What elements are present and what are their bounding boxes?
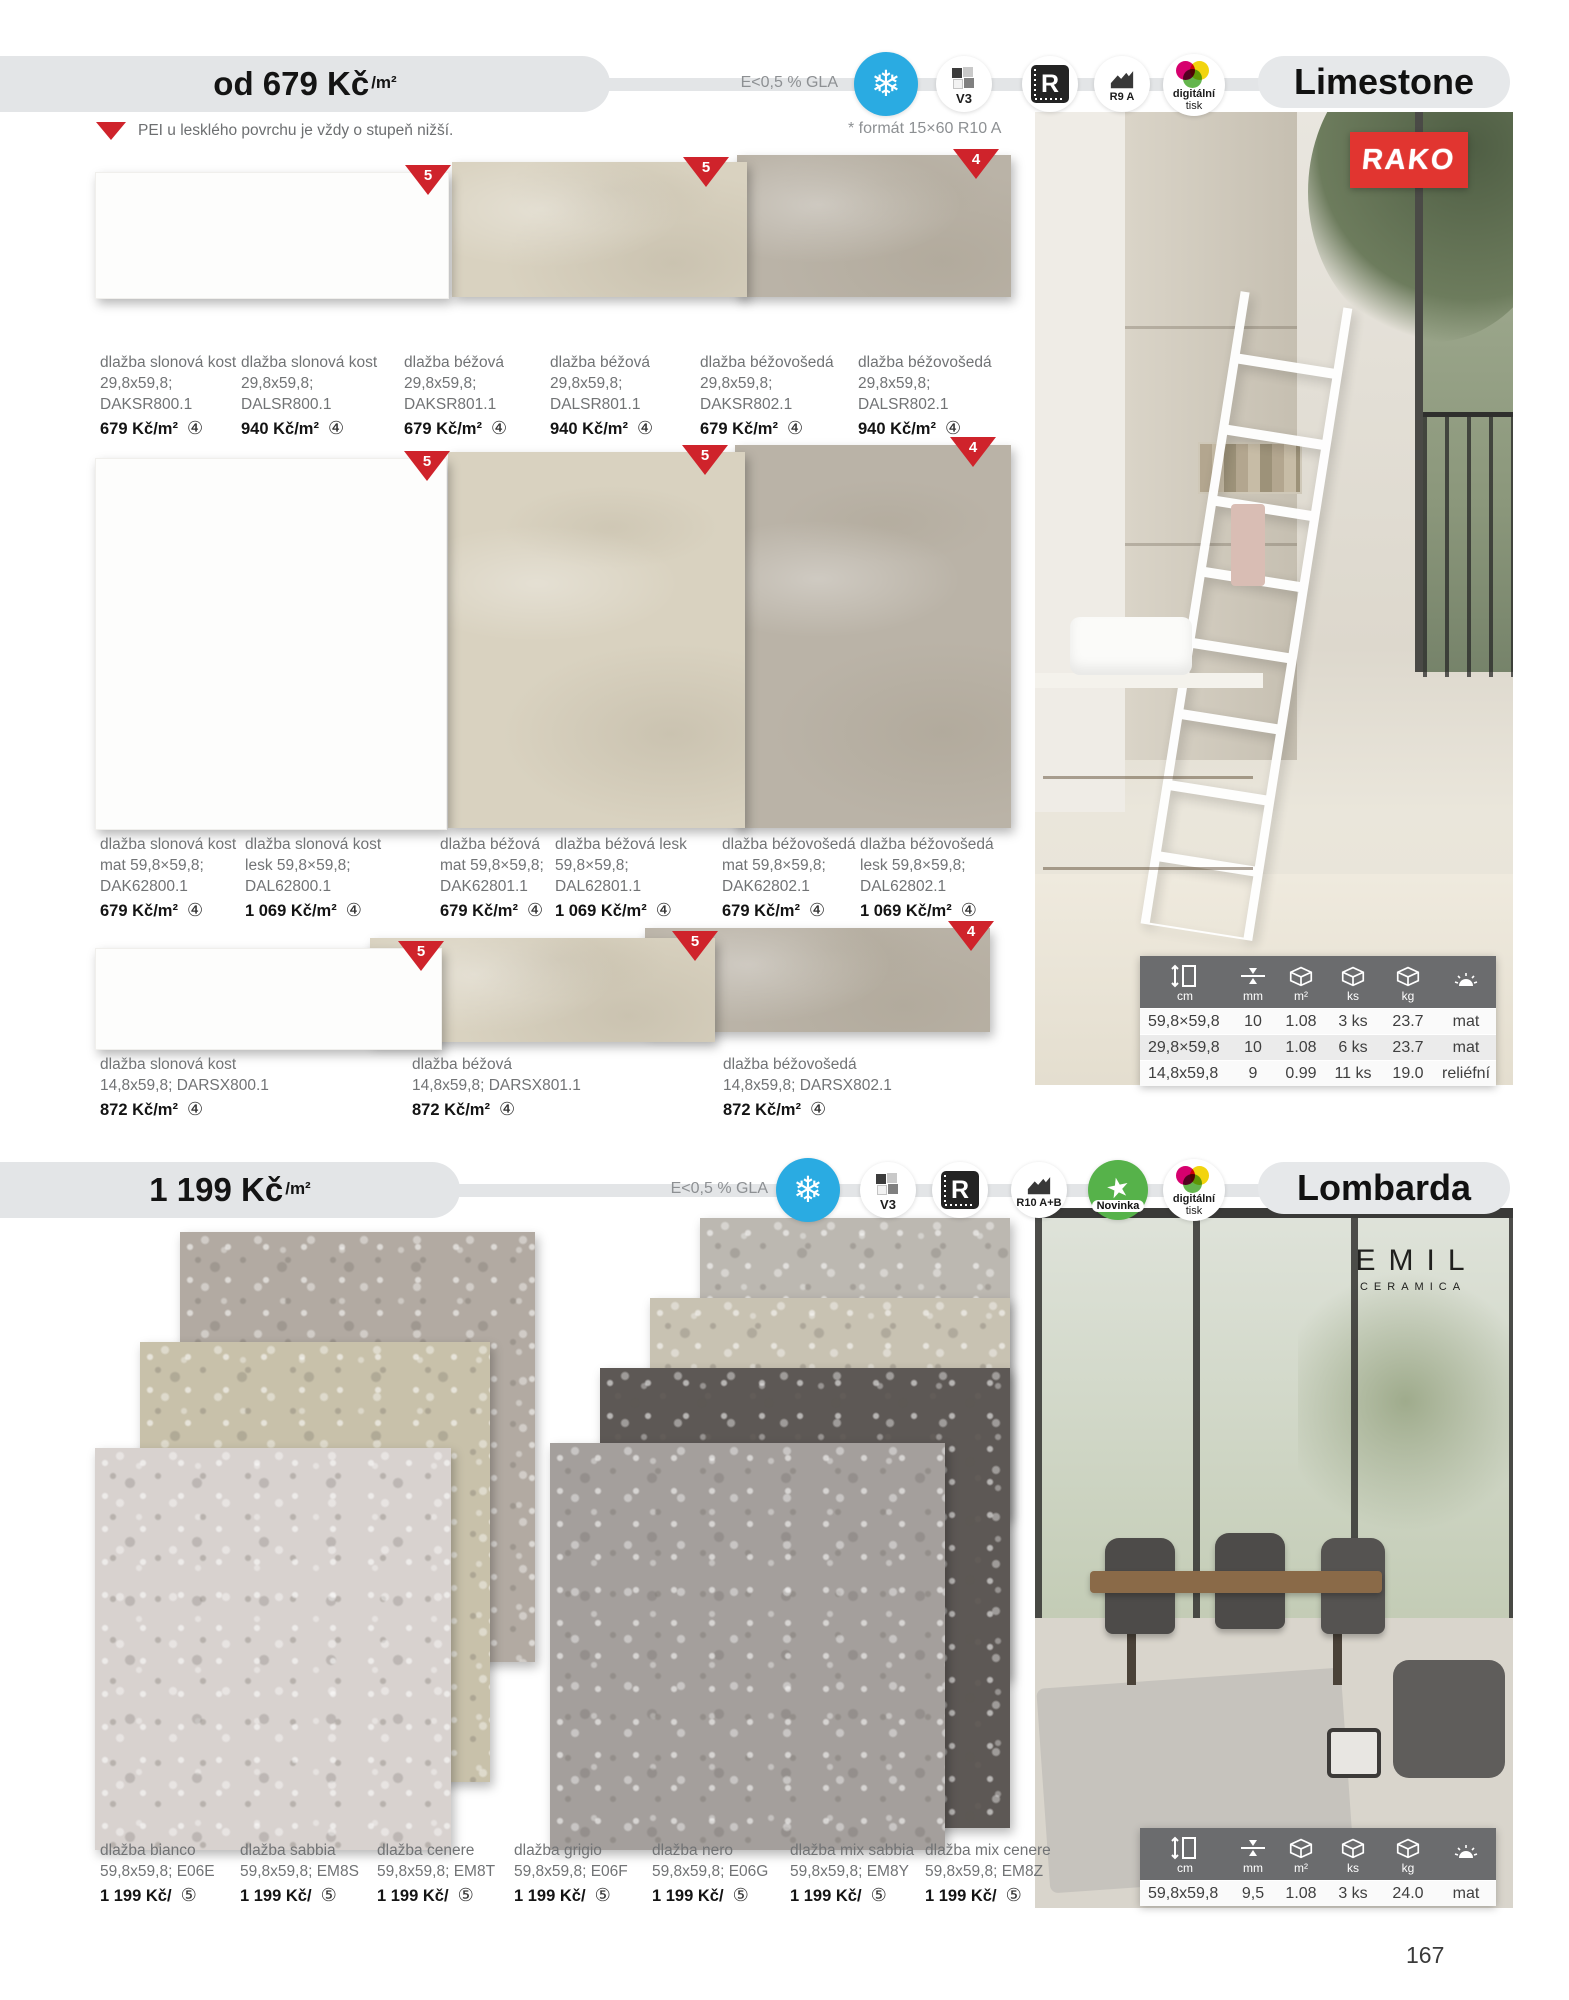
product-code: DAL62801.1	[555, 876, 715, 897]
product-name: dlažba béžovošedá	[722, 834, 882, 855]
footnote-number: ④	[810, 1099, 826, 1119]
limestone-row1-labels: dlažba slonová kost 29,8x59,8; DAKSR800.…	[0, 352, 1100, 464]
spec-row: 59,8×59,8101.083 ks23.7mat	[1140, 1008, 1496, 1034]
col-size: cm	[1140, 956, 1230, 1008]
novinka-badge: ★ Novinka	[1088, 1160, 1148, 1220]
shade-variation-label: V3	[880, 1197, 896, 1212]
swatch-slonova-kost-59x59	[95, 458, 447, 830]
lombarda-photo	[1035, 1208, 1513, 1908]
product-price: 679 Kč/m²④	[404, 418, 564, 439]
product-code: DALSR800.1	[241, 394, 401, 415]
star-icon: ★	[1103, 1172, 1132, 1203]
limestone-price: od 679 Kč	[213, 65, 369, 103]
product-size: 29,8x59,8;	[700, 373, 860, 394]
lombarda-price-unit: /m²	[285, 1179, 311, 1199]
thickness-icon	[1238, 963, 1268, 989]
product-label: dlažba béžovošedá mat 59,8×59,8; DAK6280…	[722, 834, 882, 921]
footnote-number: ⑤	[1006, 1885, 1022, 1905]
swatch-bezovoseda-59x59	[735, 445, 1011, 828]
product-code: DAKSR800.1	[100, 394, 260, 415]
slip-rating-icon: R10 A+B	[1011, 1162, 1067, 1218]
checker-icon	[952, 67, 976, 89]
product-price: 940 Kč/m²④	[241, 418, 401, 439]
product-name: dlažba béžová	[550, 352, 710, 373]
swatch-slonova-kost-14x59	[95, 948, 442, 1050]
product-name: dlažba béžovošedá	[723, 1054, 883, 1075]
digital-print-icon: digitální tisk	[1163, 54, 1225, 116]
swatch-bianco	[95, 1448, 451, 1850]
spec-table-header: cm mm m² ks kg	[1140, 1828, 1496, 1880]
box-icon	[1287, 963, 1315, 989]
product-label: dlažba slonová kost mat 59,8×59,8; DAK62…	[100, 834, 260, 921]
product-label: dlažba slonová kost 29,8x59,8; DAKSR800.…	[100, 352, 260, 439]
ramp-icon	[1025, 1172, 1053, 1196]
footnote-number: ⑤	[321, 1885, 337, 1905]
product-size: 29,8x59,8;	[100, 373, 260, 394]
product-name: dlažba slonová kost	[100, 834, 260, 855]
spec-table-rows: 59,8×59,8101.083 ks23.7mat 29,8×59,8101.…	[1140, 1008, 1496, 1086]
col-surface	[1436, 956, 1496, 1008]
slip-rating-label: R10 A+B	[1016, 1197, 1061, 1209]
surface-icon	[1451, 1841, 1481, 1867]
shade-variation-icon: V3	[936, 56, 992, 112]
product-name: dlažba slonová kost	[245, 834, 405, 855]
product-label: dlažba béžovošedá 14,8x59,8; DARSX802.1 …	[723, 1054, 883, 1120]
product-label: dlažba slonová kost lesk 59,8×59,8; DAL6…	[245, 834, 405, 921]
surface-icon	[1451, 969, 1481, 995]
lombarda-price: 1 199 Kč	[149, 1171, 283, 1209]
product-size: 59,8×59,8;	[555, 855, 715, 876]
product-price: 679 Kč/m²④	[700, 418, 860, 439]
photo-dining-table	[1090, 1571, 1382, 1593]
digital-print-icon: digitální tisk	[1163, 1159, 1225, 1221]
color-circles-icon	[1174, 1166, 1214, 1192]
novinka-label: Novinka	[1092, 1200, 1145, 1212]
snowflake-icon: ❄	[793, 1172, 823, 1208]
product-price: 1 069 Kč/m²④	[860, 900, 1020, 921]
product-size-code: 59,8x59,8; E06F	[514, 1861, 674, 1882]
photo-armchair	[1393, 1660, 1505, 1778]
r-square-icon: R	[941, 1171, 979, 1209]
swatch-bezovoseda-29x59	[737, 155, 1011, 297]
box-icon	[1287, 1835, 1315, 1861]
product-name: dlažba béžová	[404, 352, 564, 373]
red-triangle-icon	[96, 122, 126, 140]
swatch-bezova-59x59	[448, 452, 745, 828]
limestone-title: Limestone	[1258, 56, 1510, 108]
product-code: DAKSR801.1	[404, 394, 564, 415]
product-label: dlažba cenere 59,8x59,8; EM8T 1 199 Kč/⑤	[377, 1840, 537, 1906]
product-price: 679 Kč/m²④	[722, 900, 882, 921]
product-size-code: 14,8x59,8; DARSX802.1	[723, 1075, 883, 1096]
product-code: DALSR802.1	[858, 394, 1018, 415]
footnote-number: ⑤	[181, 1885, 197, 1905]
product-size-code: 59,8x59,8; EM8S	[240, 1861, 400, 1882]
product-price: 1 199 Kč/⑤	[925, 1885, 1085, 1906]
lombarda-title: Lombarda	[1258, 1162, 1510, 1214]
rako-logo: RAKO	[1350, 132, 1468, 188]
spec-row: 29,8×59,8101.086 ks23.7mat	[1140, 1034, 1496, 1060]
col-sqm: m²	[1276, 1828, 1326, 1880]
spec-table-header: cm mm m² ks kg	[1140, 956, 1496, 1008]
product-code: DAK62800.1	[100, 876, 260, 897]
photo-towel	[1231, 504, 1265, 586]
frost-resistant-icon: ❄	[854, 52, 918, 116]
limestone-price-unit: /m²	[371, 73, 397, 93]
product-name: dlažba cenere	[377, 1840, 537, 1861]
product-label: dlažba slonová kost 14,8x59,8; DARSX800.…	[100, 1054, 260, 1120]
footnote-number: ④	[187, 418, 203, 438]
product-price: 1 199 Kč/⑤	[652, 1885, 812, 1906]
checker-icon	[876, 1173, 900, 1195]
snowflake-icon: ❄	[871, 66, 901, 102]
col-pieces: ks	[1326, 956, 1380, 1008]
product-price: 1 069 Kč/m²④	[245, 900, 405, 921]
product-name: dlažba béžovošedá	[858, 352, 1018, 373]
box-icon	[1339, 1835, 1367, 1861]
product-price: 679 Kč/m²④	[100, 900, 260, 921]
product-label: dlažba béžová 29,8x59,8; DALSR801.1 940 …	[550, 352, 710, 439]
product-label: dlažba béžovošedá 29,8x59,8; DALSR802.1 …	[858, 352, 1018, 439]
footnote-number: ⑤	[595, 1885, 611, 1905]
footnote-number: ④	[527, 900, 543, 920]
photo-basin	[1070, 617, 1192, 675]
product-label: dlažba slonová kost 29,8x59,8; DALSR800.…	[241, 352, 401, 439]
footnote-number: ⑤	[458, 1885, 474, 1905]
product-size: 29,8x59,8;	[858, 373, 1018, 394]
product-size-code: 59,8x59,8; EM8T	[377, 1861, 537, 1882]
pei-note: PEI u lesklého povrchu je vždy o stupeň …	[96, 122, 453, 140]
product-label: dlažba béžová 29,8x59,8; DAKSR801.1 679 …	[404, 352, 564, 439]
product-name: dlažba béžovošedá	[700, 352, 860, 373]
r-square-icon: R	[1031, 65, 1069, 103]
product-price: 1 069 Kč/m²④	[555, 900, 715, 921]
product-label: dlažba grigio 59,8x59,8; E06F 1 199 Kč/⑤	[514, 1840, 674, 1906]
product-code: DAKSR802.1	[700, 394, 860, 415]
product-label: dlažba sabbia 59,8x59,8; EM8S 1 199 Kč/⑤	[240, 1840, 400, 1906]
swatch-grigio	[550, 1443, 945, 1850]
lombarda-spec-table: cm mm m² ks kg	[1140, 1828, 1496, 1906]
col-weight: kg	[1380, 1828, 1436, 1880]
swatch-slonova-kost-29x59	[95, 172, 449, 299]
product-code: DALSR801.1	[550, 394, 710, 415]
col-surface	[1436, 1828, 1496, 1880]
footnote-number: ④	[187, 1099, 203, 1119]
col-thickness: mm	[1230, 1828, 1276, 1880]
slip-rating-label: R9 A	[1110, 91, 1135, 103]
product-name: dlažba bianco	[100, 1840, 260, 1861]
footnote-number: ④	[945, 418, 961, 438]
limestone-row2-labels: dlažba slonová kost mat 59,8×59,8; DAK62…	[0, 834, 1100, 946]
product-label: dlažba béžovošedá 29,8x59,8; DAKSR802.1 …	[700, 352, 860, 439]
footnote-number: ④	[787, 418, 803, 438]
col-weight: kg	[1380, 956, 1436, 1008]
product-name: dlažba mix cenere	[925, 1840, 1085, 1861]
limestone-photo	[1035, 112, 1513, 1085]
limestone-spec-table: cm mm m² ks kg	[1140, 956, 1496, 1086]
thickness-icon	[1238, 1835, 1268, 1861]
product-size-code: 14,8x59,8; DARSX800.1	[100, 1075, 260, 1096]
product-name: dlažba béžová	[412, 1054, 572, 1075]
product-name: dlažba slonová kost	[241, 352, 401, 373]
product-price: 872 Kč/m²④	[100, 1099, 260, 1120]
photo-countertop	[1035, 673, 1263, 688]
lombarda-labels: dlažba bianco 59,8x59,8; E06E 1 199 Kč/⑤…	[0, 1840, 1100, 1952]
product-size: lesk 59,8×59,8;	[245, 855, 405, 876]
product-label: dlažba béžová lesk 59,8×59,8; DAL62801.1…	[555, 834, 715, 921]
col-size: cm	[1140, 1828, 1230, 1880]
format-note: * formát 15×60 R10 A	[848, 120, 1001, 138]
col-pieces: ks	[1326, 1828, 1380, 1880]
product-price: 940 Kč/m²④	[858, 418, 1018, 439]
spec-row: 59,8x59,89,51.083 ks24.0mat	[1140, 1880, 1496, 1906]
footnote-number: ④	[809, 900, 825, 920]
product-name: dlažba béžová lesk	[555, 834, 715, 855]
frost-resistant-icon: ❄	[776, 1158, 840, 1222]
limestone-price-pill: od 679 Kč/m²	[0, 56, 610, 112]
product-name: dlažba slonová kost	[100, 352, 260, 373]
footnote-number: ⑤	[871, 1885, 887, 1905]
box-icon	[1394, 963, 1422, 989]
product-price: 872 Kč/m²④	[412, 1099, 572, 1120]
footnote-number: ④	[637, 418, 653, 438]
product-name: dlažba grigio	[514, 1840, 674, 1861]
color-circles-icon	[1174, 61, 1214, 87]
shade-variation-icon: V3	[860, 1162, 916, 1218]
product-size: 29,8x59,8;	[550, 373, 710, 394]
product-price: 872 Kč/m²④	[723, 1099, 883, 1120]
product-name: dlažba slonová kost	[100, 1054, 260, 1075]
photo-side-table	[1327, 1728, 1381, 1778]
emil-ceramica-logo: EMIL CERAMICA	[1330, 1244, 1490, 1293]
footnote-number: ④	[346, 900, 362, 920]
product-price: 1 199 Kč/⑤	[514, 1885, 674, 1906]
ramp-icon	[1108, 66, 1136, 90]
footnote-number: ④	[656, 900, 672, 920]
spec-row: 14,8x59,890.9911 ks19.0reliéfní	[1140, 1060, 1496, 1086]
footnote-number: ④	[187, 900, 203, 920]
col-sqm: m²	[1276, 956, 1326, 1008]
page-number: 167	[1406, 1942, 1444, 1969]
slip-rating-icon: R9 A	[1094, 56, 1150, 112]
box-icon	[1339, 963, 1367, 989]
spec-table-rows: 59,8x59,89,51.083 ks24.0mat	[1140, 1880, 1496, 1906]
product-size-code: 59,8x59,8; EM8Z	[925, 1861, 1085, 1882]
product-size: 29,8x59,8;	[404, 373, 564, 394]
product-name: dlažba nero	[652, 1840, 812, 1861]
product-price: 1 199 Kč/⑤	[240, 1885, 400, 1906]
product-name: dlažba sabbia	[240, 1840, 400, 1861]
product-label: dlažba béžová 14,8x59,8; DARSX801.1 872 …	[412, 1054, 572, 1120]
box-icon	[1394, 1835, 1422, 1861]
shade-variation-label: V3	[956, 91, 972, 106]
product-price: 1 199 Kč/⑤	[100, 1885, 260, 1906]
limestone-row3-labels: dlažba slonová kost 14,8x59,8; DARSX800.…	[0, 1054, 1100, 1166]
photo-railing	[1423, 412, 1513, 677]
footnote-number: ④	[499, 1099, 515, 1119]
product-size: mat 59,8×59,8;	[100, 855, 260, 876]
size-icon	[1170, 963, 1200, 989]
product-label: dlažba nero 59,8x59,8; E06G 1 199 Kč/⑤	[652, 1840, 812, 1906]
product-label: dlažba mix cenere 59,8x59,8; EM8Z 1 199 …	[925, 1840, 1085, 1906]
size-icon	[1170, 1835, 1200, 1861]
footnote-number: ④	[961, 900, 977, 920]
product-name: dlažba béžovošedá	[860, 834, 1020, 855]
photo-window-frame	[1415, 112, 1423, 672]
product-price: 679 Kč/m²④	[100, 418, 260, 439]
limestone-emission-label: E<0,5 % GLA	[718, 74, 838, 92]
col-thickness: mm	[1230, 956, 1276, 1008]
product-label: dlažba béžovošedá lesk 59,8×59,8; DAL628…	[860, 834, 1020, 921]
product-size: mat 59,8×59,8;	[722, 855, 882, 876]
product-size-code: 59,8x59,8; E06G	[652, 1861, 812, 1882]
product-code: DAL62802.1	[860, 876, 1020, 897]
product-price: 1 199 Kč/⑤	[377, 1885, 537, 1906]
product-size: lesk 59,8×59,8;	[860, 855, 1020, 876]
footnote-number: ④	[491, 418, 507, 438]
footnote-number: ⑤	[733, 1885, 749, 1905]
rectified-icon: R	[1022, 56, 1078, 112]
footnote-number: ④	[328, 418, 344, 438]
product-size-code: 59,8x59,8; E06E	[100, 1861, 260, 1882]
product-price: 940 Kč/m²④	[550, 418, 710, 439]
product-size: 29,8x59,8;	[241, 373, 401, 394]
lombarda-price-pill: 1 199 Kč/m²	[0, 1162, 460, 1218]
lombarda-emission-label: E<0,5 % GLA	[648, 1180, 768, 1198]
product-code: DAL62800.1	[245, 876, 405, 897]
rectified-icon: R	[932, 1162, 988, 1218]
product-code: DAK62802.1	[722, 876, 882, 897]
product-size-code: 14,8x59,8; DARSX801.1	[412, 1075, 572, 1096]
product-label: dlažba bianco 59,8x59,8; E06E 1 199 Kč/⑤	[100, 1840, 260, 1906]
